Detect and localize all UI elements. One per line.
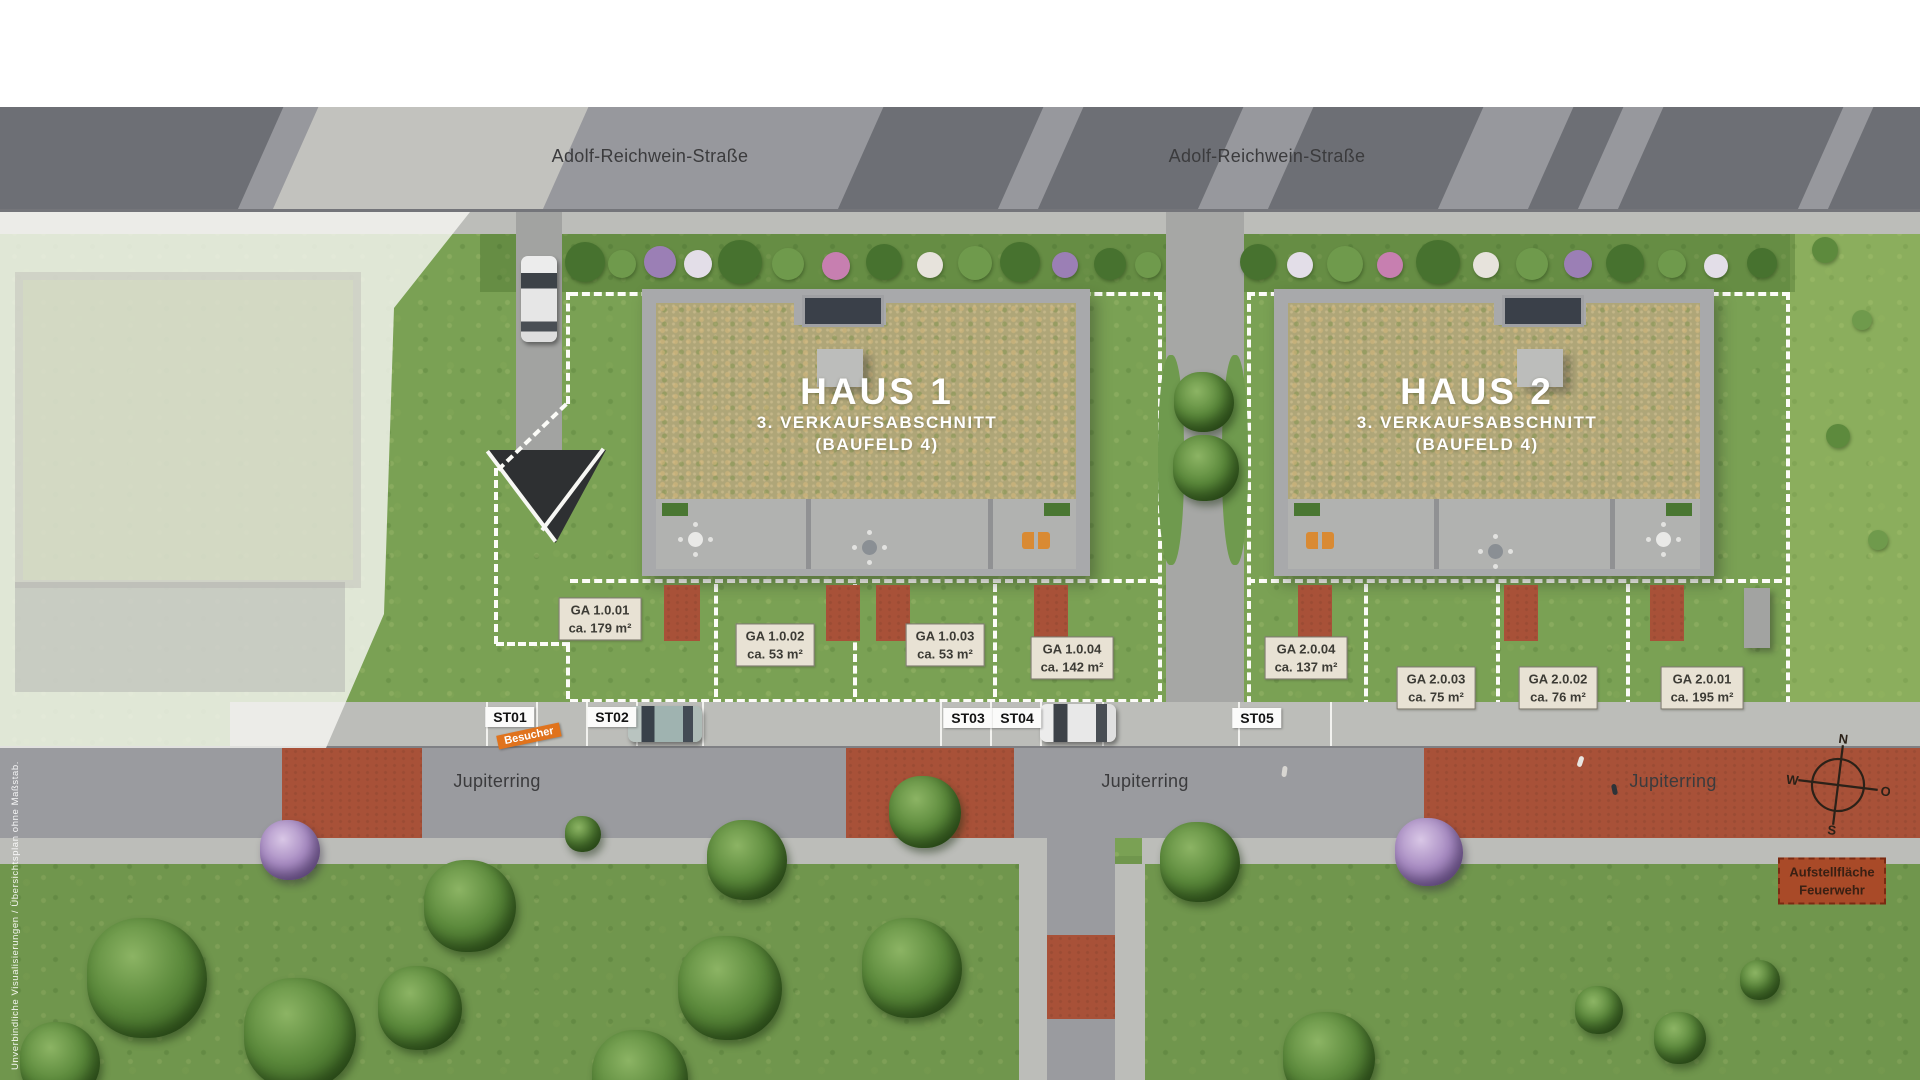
fire-lane-label: Aufstellfläche Feuerwehr (1778, 857, 1886, 904)
ga-size: ca. 195 m² (1671, 688, 1734, 706)
shrub (608, 250, 636, 278)
terrace-planter (1294, 503, 1320, 516)
plot-1-left-step-edge (566, 644, 570, 699)
tree (1160, 822, 1240, 902)
flowering-tree (260, 820, 320, 880)
ga-size: ca. 75 m² (1407, 688, 1466, 706)
shrub (1826, 424, 1850, 448)
tree (707, 820, 787, 900)
ga-size: ca. 53 m² (916, 645, 975, 663)
branch-sidewalk-east (1115, 864, 1145, 1080)
parking-bay-line (1330, 702, 1332, 748)
flowering-tree (1395, 818, 1463, 886)
ga-code: GA 1.0.01 (569, 601, 632, 619)
skylight-haus-2 (1502, 295, 1584, 327)
patio-table (862, 540, 877, 555)
tree (889, 776, 961, 848)
parking-label-st03: ST03 (943, 708, 992, 728)
shrub (1516, 248, 1548, 280)
sidewalk-south-west (0, 838, 1047, 864)
shrub (1704, 254, 1728, 278)
ga-divider (714, 584, 718, 697)
ga-code: GA 2.0.02 (1529, 670, 1588, 688)
shrub (822, 252, 850, 280)
shrub (565, 242, 605, 282)
shrub (1658, 250, 1686, 278)
shrub (1052, 252, 1078, 278)
sun-loungers (1306, 532, 1334, 549)
shrub (1564, 250, 1592, 278)
tree (565, 816, 601, 852)
compass-west-label: W (1786, 772, 1800, 788)
haus-1-title-block: HAUS 1 3. VERKAUFSABSCHNITT (BAUFELD 4) (667, 372, 1087, 456)
terrace-planter (662, 503, 688, 516)
haus-1-sales-phase: 3. VERKAUFSABSCHNITT (667, 412, 1087, 434)
ga-code: GA 1.0.04 (1041, 640, 1104, 658)
shrub (1473, 252, 1499, 278)
ga-divider (993, 584, 997, 697)
shrub (1000, 242, 1040, 282)
ga-label-2-0-01: GA 2.0.01 ca. 195 m² (1661, 666, 1744, 709)
compass-east-label: O (1880, 783, 1890, 799)
tree (87, 918, 207, 1038)
plot-1-left-edge (566, 292, 570, 404)
garden-terrace (1034, 585, 1068, 641)
shrub (866, 244, 902, 280)
haus-2-title-block: HAUS 2 3. VERKAUFSABSCHNITT (BAUFELD 4) (1267, 372, 1687, 456)
red-crossing-south (1047, 935, 1115, 1019)
ga-label-1-0-04: GA 1.0.04 ca. 142 m² (1031, 636, 1114, 679)
ga-label-1-0-02: GA 1.0.02 ca. 53 m² (736, 623, 815, 666)
patio-chairs (688, 532, 703, 547)
existing-roof-hint (15, 272, 361, 588)
garden-shed (1744, 588, 1770, 648)
shrub (1135, 252, 1161, 278)
patio-table (1488, 544, 1503, 559)
parking-label-st04: ST04 (992, 708, 1041, 728)
parking-label-st05: ST05 (1232, 708, 1281, 728)
garden-terrace (1650, 585, 1684, 641)
street-name-jupiterring-2: Jupiterring (1101, 771, 1188, 792)
shrub (1606, 244, 1644, 282)
garden-terrace (1504, 585, 1538, 641)
compass-north-label: N (1838, 733, 1849, 747)
haus-2-sales-phase: 3. VERKAUFSABSCHNITT (1267, 412, 1687, 434)
patio-chairs (1656, 532, 1671, 547)
street-name-adolf-1: Adolf-Reichwein-Straße (552, 146, 749, 167)
existing-terrace-hint (15, 582, 345, 692)
branch-sidewalk-west (1019, 864, 1047, 1080)
tree (1740, 960, 1780, 1000)
parking-bay-line (940, 702, 942, 748)
sun-loungers (1022, 532, 1050, 549)
tree (678, 936, 782, 1040)
right-lawn (1790, 212, 1920, 758)
shrub (917, 252, 943, 278)
ga-label-1-0-01: GA 1.0.01 ca. 179 m² (559, 597, 642, 640)
ga-size: ca. 179 m² (569, 619, 632, 637)
haus-1-baufeld: (BAUFELD 4) (667, 434, 1087, 456)
terrace-wall (988, 499, 993, 569)
shrub (1868, 530, 1888, 550)
ga-label-2-0-04: GA 2.0.04 ca. 137 m² (1265, 636, 1348, 679)
shrub (1416, 240, 1460, 284)
tree (1173, 435, 1239, 501)
street-name-jupiterring-1: Jupiterring (453, 771, 540, 792)
tree (1654, 1012, 1706, 1064)
terrace-planter (1666, 503, 1692, 516)
ga-code: GA 2.0.01 (1671, 670, 1734, 688)
garden-terrace (1298, 585, 1332, 641)
garden-terrace (826, 585, 860, 641)
haus-2-baufeld: (BAUFELD 4) (1267, 434, 1687, 456)
ga-label-2-0-03: GA 2.0.03 ca. 75 m² (1397, 666, 1476, 709)
shrub (1287, 252, 1313, 278)
haus-1-name: HAUS 1 (667, 372, 1087, 412)
car-white-st04 (1040, 704, 1116, 742)
plot-2-terrace-edge (1247, 579, 1782, 583)
car-white-driveway (521, 256, 557, 342)
building-shadow (0, 107, 283, 212)
site-plan: Adolf-Reichwein-Straße Adolf-Reichwein-S… (0, 0, 1920, 1080)
shrub (718, 240, 762, 284)
shrub (958, 246, 992, 280)
ga-divider (1364, 584, 1368, 708)
ga-size: ca. 142 m² (1041, 658, 1104, 676)
terrace-planter (1044, 503, 1070, 516)
shrub (1240, 244, 1276, 280)
skylight-haus-1 (802, 295, 884, 327)
ga-code: GA 2.0.04 (1275, 640, 1338, 658)
shrub (1377, 252, 1403, 278)
tree (1575, 986, 1623, 1034)
shrub (1747, 248, 1777, 278)
tree (862, 918, 962, 1018)
shrub (772, 248, 804, 280)
parking-label-st02: ST02 (587, 707, 636, 727)
terrace-strip-haus-1 (656, 499, 1076, 569)
compass-rose: N O S W (1786, 733, 1890, 837)
shrub (644, 246, 676, 278)
street-top-light-patch (272, 107, 589, 212)
plot-1-bottom-left-edge (496, 642, 570, 646)
tree (378, 966, 462, 1050)
compass-south-label: S (1827, 822, 1838, 837)
plot-1-terrace-edge (570, 579, 1158, 583)
fire-lane-line1: Aufstellfläche (1782, 863, 1882, 881)
ga-code: GA 2.0.03 (1407, 670, 1466, 688)
ga-divider (1626, 584, 1630, 708)
ga-label-2-0-02: GA 2.0.02 ca. 76 m² (1519, 666, 1598, 709)
fire-lane-line2: Feuerwehr (1782, 881, 1882, 899)
terrace-wall (1434, 499, 1439, 569)
terrace-wall (1610, 499, 1615, 569)
shrub (1852, 310, 1872, 330)
tree (1174, 372, 1234, 432)
terrace-wall (806, 499, 811, 569)
top-white-band (0, 0, 1920, 107)
ga-size: ca. 76 m² (1529, 688, 1588, 706)
ga-size: ca. 53 m² (746, 645, 805, 663)
shrub (1327, 246, 1363, 282)
street-name-adolf-2: Adolf-Reichwein-Straße (1169, 146, 1366, 167)
car-teal-st02 (628, 706, 702, 742)
shrub (1812, 237, 1838, 263)
ga-size: ca. 137 m² (1275, 658, 1338, 676)
shrub (1094, 248, 1126, 280)
parking-bay-line (702, 702, 704, 748)
haus-2-name: HAUS 2 (1267, 372, 1687, 412)
ga-code: GA 1.0.02 (746, 627, 805, 645)
ga-divider (1496, 584, 1500, 708)
ga-code: GA 1.0.03 (916, 627, 975, 645)
tree (424, 860, 516, 952)
ga-label-1-0-03: GA 1.0.03 ca. 53 m² (906, 623, 985, 666)
disclaimer-text: Unverbindliche Visualisierungen / Übersi… (10, 835, 21, 1070)
parking-label-st01: ST01 (485, 707, 534, 727)
street-name-jupiterring-3: Jupiterring (1629, 771, 1716, 792)
shrub (684, 250, 712, 278)
plot-1-left-lower-edge (494, 468, 498, 644)
garden-terrace (664, 585, 700, 641)
